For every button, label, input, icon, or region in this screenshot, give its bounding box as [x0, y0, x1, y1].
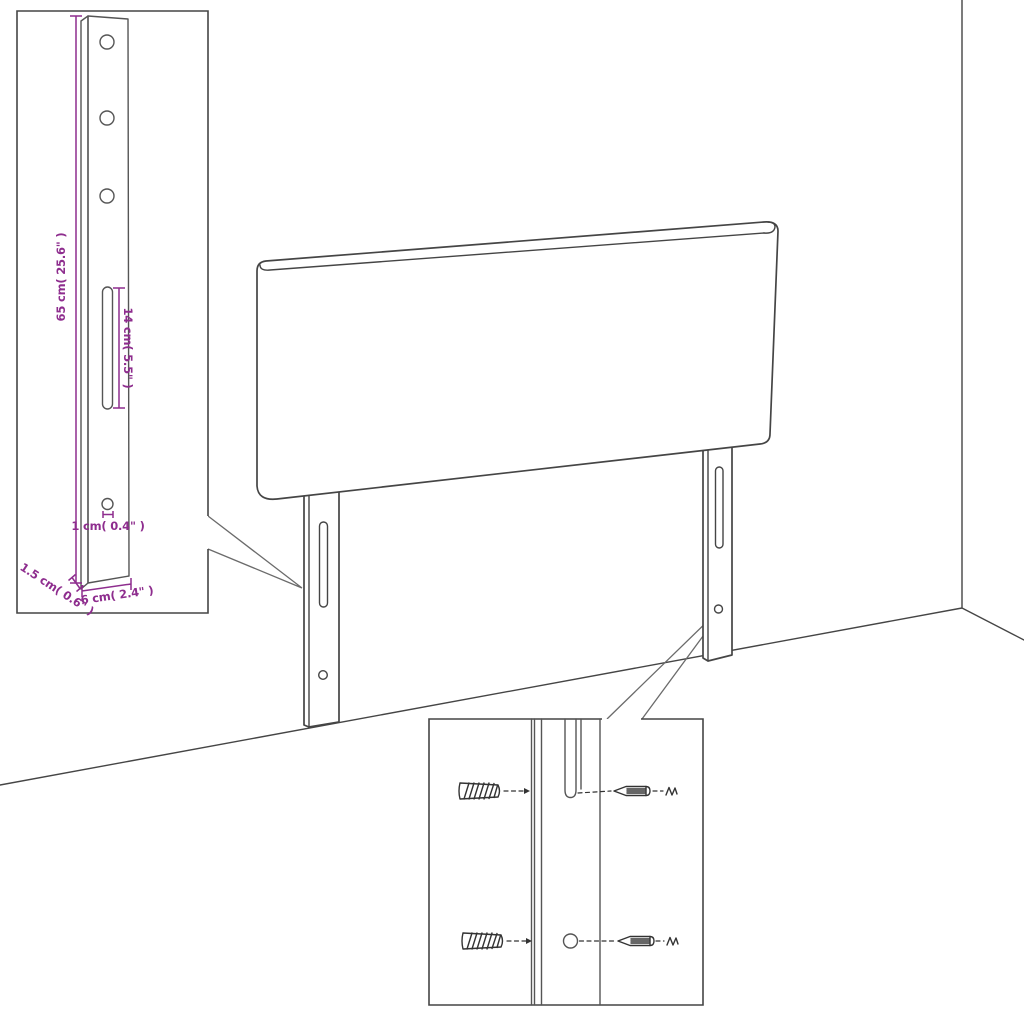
diagram-canvas — [0, 0, 1024, 1024]
dim-label-slot-length: 14 cm( 5.5" ) — [121, 307, 135, 388]
right-mounting-leg — [703, 444, 732, 661]
callout-lines-left-leg — [208, 516, 302, 588]
headboard-panel — [257, 222, 778, 499]
dim-label-hole-diameter: 1 cm( 0.4" ) — [71, 519, 144, 533]
dim-label-leg-height: 65 cm( 25.6" ) — [54, 233, 68, 322]
left-mounting-leg — [304, 488, 339, 727]
hardware-detail-inset — [429, 719, 703, 1005]
product-dimension-diagram: { "colors": { "accent": "#8e2d8e", "line… — [0, 0, 1024, 1024]
